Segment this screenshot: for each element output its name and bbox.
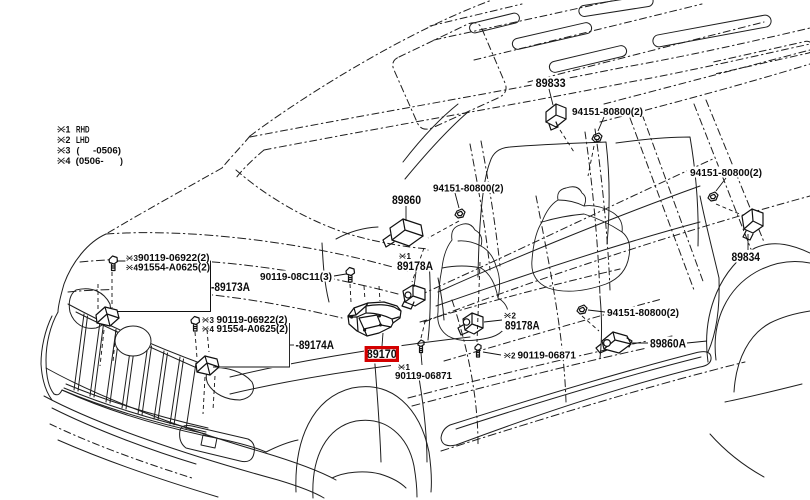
svg-text:3: 3 (66, 145, 71, 155)
svg-text:3: 3 (210, 316, 215, 325)
svg-text:91554-A0625(2): 91554-A0625(2) (138, 261, 210, 273)
svg-text:4: 4 (66, 156, 71, 166)
svg-text:89833: 89833 (536, 76, 566, 90)
svg-text:LHD: LHD (76, 135, 90, 145)
svg-text:89860A: 89860A (650, 337, 686, 351)
svg-text:RHD: RHD (76, 124, 90, 134)
svg-text:91554-A0625(2): 91554-A0625(2) (217, 323, 289, 335)
svg-text:89860: 89860 (392, 193, 421, 207)
svg-text:94151-80800(2): 94151-80800(2) (607, 307, 679, 319)
svg-text:89178A: 89178A (505, 318, 540, 332)
svg-text:94151-80800(2): 94151-80800(2) (572, 106, 643, 118)
svg-text:(: ( (77, 145, 80, 155)
svg-text:90119-06871: 90119-06871 (518, 349, 577, 361)
svg-text:94151-80800(2): 94151-80800(2) (433, 183, 504, 195)
svg-text:94151-80800(2): 94151-80800(2) (690, 167, 762, 179)
svg-text:89834: 89834 (732, 250, 761, 264)
svg-text:1: 1 (66, 124, 71, 134)
svg-text:(0506-: (0506- (76, 156, 104, 166)
svg-text:89178A: 89178A (397, 259, 433, 273)
svg-text:): ) (120, 156, 123, 166)
svg-text:90119-08C11(3): 90119-08C11(3) (260, 271, 332, 283)
svg-text:-0506): -0506) (93, 145, 121, 155)
svg-text:-89173A: -89173A (211, 280, 250, 294)
svg-text:2: 2 (66, 135, 71, 145)
svg-text:2: 2 (511, 351, 516, 360)
svg-text:90119-06871: 90119-06871 (395, 370, 452, 382)
svg-text:4: 4 (210, 325, 215, 334)
svg-text:-89174A: -89174A (296, 338, 335, 352)
